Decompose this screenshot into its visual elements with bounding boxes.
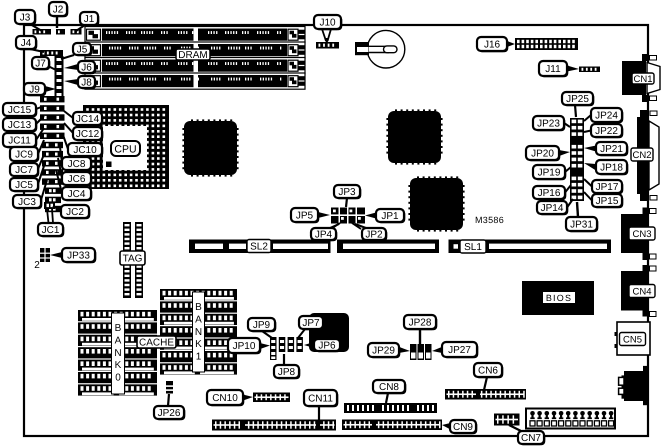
svg-text:JP22: JP22: [595, 126, 618, 137]
svg-text:JC9: JC9: [15, 150, 33, 161]
svg-text:JP17: JP17: [596, 182, 619, 193]
svg-text:JP24: JP24: [595, 111, 618, 122]
svg-text:JC11: JC11: [8, 136, 31, 147]
svg-text:BIOS: BIOS: [546, 293, 572, 303]
svg-text:J16: J16: [484, 40, 501, 51]
svg-text:J4: J4: [21, 38, 32, 49]
svg-text:N: N: [114, 348, 121, 359]
svg-text:J8: J8: [81, 78, 92, 89]
svg-text:TAG: TAG: [123, 254, 143, 265]
svg-text:M3586: M3586: [475, 215, 504, 225]
svg-text:CN10: CN10: [212, 393, 238, 404]
svg-text:JP14: JP14: [541, 203, 564, 214]
svg-text:CN9: CN9: [453, 422, 473, 433]
svg-text:JP6: JP6: [318, 341, 336, 352]
svg-text:A: A: [115, 335, 122, 346]
svg-text:J3: J3: [20, 13, 31, 24]
svg-text:CN3: CN3: [632, 229, 651, 240]
svg-text:JP15: JP15: [596, 196, 619, 207]
svg-text:2: 2: [34, 260, 40, 271]
svg-text:J7: J7: [35, 59, 46, 70]
svg-text:JC4: JC4: [68, 189, 86, 200]
svg-text:SL1: SL1: [464, 242, 482, 253]
svg-text:JC14: JC14: [76, 114, 100, 125]
svg-text:A: A: [195, 314, 202, 325]
svg-text:CN8: CN8: [379, 382, 399, 393]
svg-text:JC12: JC12: [76, 129, 100, 140]
svg-text:JP26: JP26: [158, 408, 181, 419]
svg-text:J5: J5: [77, 45, 88, 56]
svg-text:CACHE: CACHE: [139, 338, 174, 349]
svg-text:JC8: JC8: [68, 159, 86, 170]
svg-text:JC3: JC3: [18, 197, 36, 208]
svg-text:JP28: JP28: [409, 318, 432, 329]
svg-text:JP7: JP7: [302, 318, 320, 329]
svg-text:J2: J2: [53, 5, 64, 16]
svg-text:JP19: JP19: [538, 168, 561, 179]
svg-text:JP9: JP9: [253, 320, 271, 331]
svg-text:CN11: CN11: [308, 394, 333, 405]
svg-text:1: 1: [196, 352, 202, 363]
svg-text:CN7: CN7: [521, 433, 541, 444]
svg-text:JP20: JP20: [531, 149, 554, 160]
svg-text:CN1: CN1: [633, 74, 652, 85]
svg-text:JP31: JP31: [570, 220, 593, 231]
svg-text:DRAM: DRAM: [178, 50, 207, 61]
svg-text:JP18: JP18: [600, 163, 623, 174]
svg-text:JC2: JC2: [66, 207, 84, 218]
svg-text:JC13: JC13: [8, 120, 32, 131]
svg-text:JP23: JP23: [537, 119, 560, 130]
svg-text:J11: J11: [545, 64, 561, 75]
svg-text:CN2: CN2: [632, 150, 651, 161]
svg-text:CN6: CN6: [478, 366, 498, 377]
svg-text:JP2: JP2: [365, 230, 383, 241]
svg-text:JC10: JC10: [73, 145, 97, 156]
svg-text:JP5: JP5: [296, 211, 314, 222]
svg-text:JP10: JP10: [233, 341, 256, 352]
svg-text:J6: J6: [81, 63, 92, 74]
svg-text:JP8: JP8: [278, 367, 296, 378]
svg-text:JP4: JP4: [315, 230, 333, 241]
svg-text:JP21: JP21: [600, 144, 623, 155]
svg-text:JP27: JP27: [448, 345, 471, 356]
svg-text:CN4: CN4: [632, 287, 651, 298]
svg-text:N: N: [195, 327, 202, 338]
svg-text:B: B: [115, 323, 122, 334]
svg-text:JC1: JC1: [42, 225, 60, 236]
svg-text:CPU: CPU: [114, 144, 136, 156]
svg-text:0: 0: [115, 373, 121, 384]
svg-text:JP16: JP16: [538, 188, 561, 199]
svg-text:JP29: JP29: [372, 346, 395, 357]
svg-text:JP3: JP3: [338, 187, 356, 198]
svg-text:JP25: JP25: [566, 94, 589, 105]
svg-text:CN5: CN5: [623, 335, 642, 346]
svg-text:JC7: JC7: [15, 165, 33, 176]
svg-text:K: K: [195, 339, 202, 350]
svg-text:J9: J9: [29, 85, 40, 96]
svg-text:B: B: [195, 302, 202, 313]
svg-text:J1: J1: [84, 14, 95, 25]
svg-text:JP1: JP1: [381, 211, 399, 222]
svg-text:K: K: [115, 360, 122, 371]
svg-text:JC15: JC15: [8, 105, 32, 116]
svg-text:J10: J10: [319, 18, 336, 29]
svg-text:JP33: JP33: [67, 251, 90, 262]
svg-text:JC6: JC6: [68, 174, 86, 185]
svg-text:SL2: SL2: [250, 242, 268, 253]
svg-text:JC5: JC5: [15, 180, 33, 191]
